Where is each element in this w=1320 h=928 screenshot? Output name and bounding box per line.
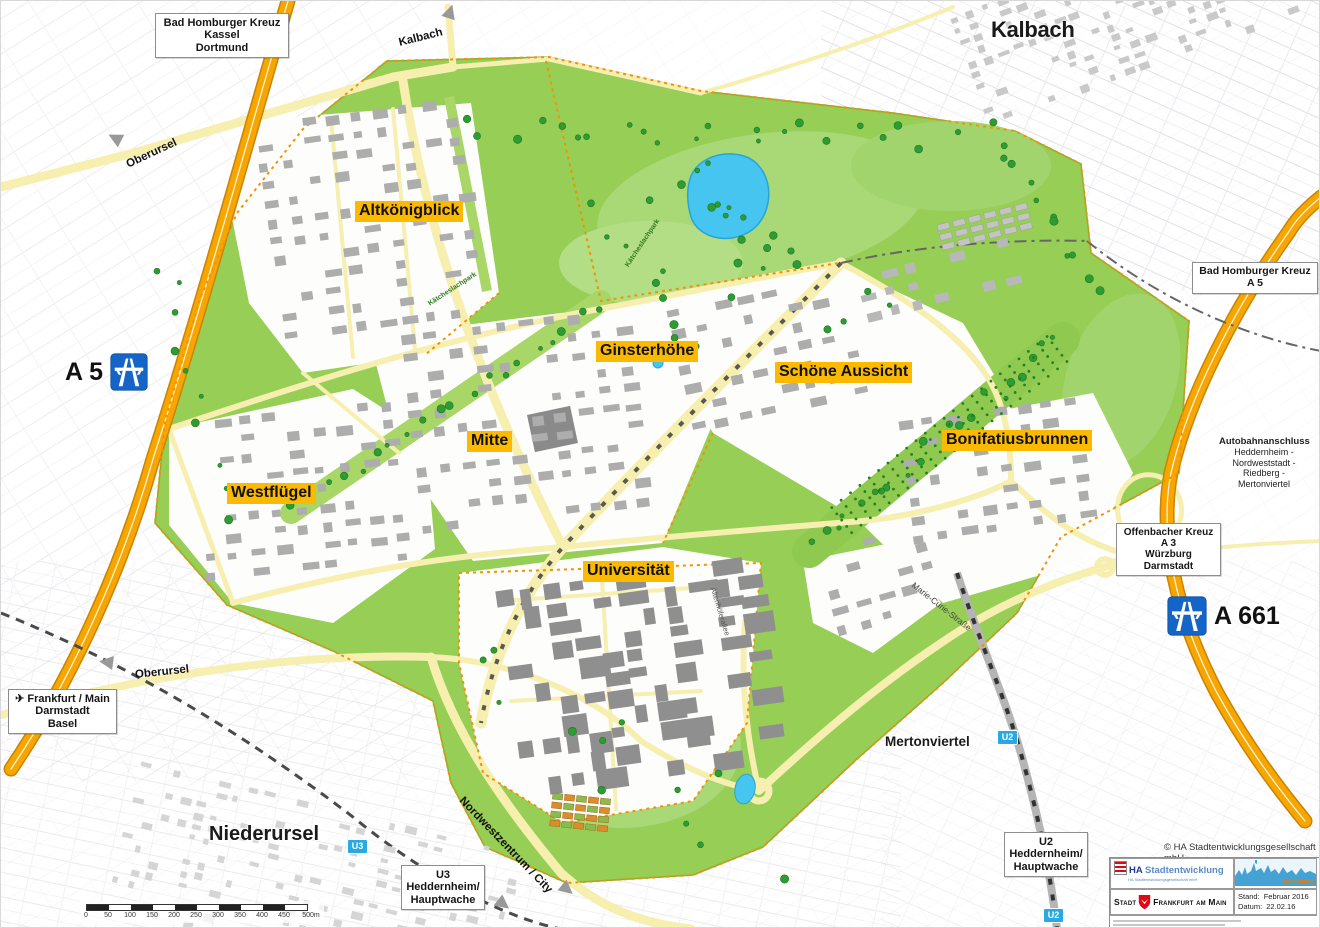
fineprint-line	[1113, 924, 1225, 927]
airplane-icon: ✈	[15, 693, 24, 705]
city-logo-stadt: Stadt	[1114, 897, 1136, 907]
sign-line: U3	[404, 869, 482, 881]
scale-segment	[109, 905, 131, 910]
district-label-bonifatiusbrunnen: Bonifatiusbrunnen	[942, 430, 1092, 451]
scale-segment	[219, 905, 241, 910]
sign-line-text: Frankfurt / Main	[27, 693, 110, 705]
ha-logo-subline: HA Stadtentwicklungsgesellschaft mbH	[1128, 877, 1230, 882]
area-label-mertonviertel: Mertonviertel	[885, 734, 970, 749]
scale-segment	[153, 905, 175, 910]
sign-frankfurt-airport: ✈ Frankfurt / Main Darmstadt Basel	[8, 689, 117, 734]
motorway-plate-a5: A 5	[65, 353, 148, 391]
sign-line: Würzburg	[1119, 549, 1218, 560]
motorway-number: A 5	[65, 358, 103, 387]
u2-line-badge: U2	[997, 730, 1018, 745]
scale-tick: 400	[256, 912, 268, 919]
scale-tick: 300	[212, 912, 224, 919]
datum-value: 22.02.16	[1266, 902, 1295, 912]
scale-tick: 150	[146, 912, 158, 919]
scale-tick: 50	[104, 912, 112, 919]
scale-tick: 450	[278, 912, 290, 919]
imprint-fineprint	[1110, 915, 1317, 928]
riedberg-district-map: Bad Homburger Kreuz Kassel Dortmund Bad …	[0, 0, 1320, 928]
area-label-niederursel: Niederursel	[209, 823, 319, 846]
scale-bar: 0 50 100 150 200 250 300 350 400 450 500…	[80, 901, 324, 923]
map-art	[1, 1, 1320, 928]
autobahnanschluss-note: Autobahnanschluss Heddernheim - Nordwest…	[1219, 436, 1309, 490]
sign-line: Darmstadt	[1119, 561, 1218, 572]
sign-line: Hauptwache	[404, 894, 482, 906]
scale-bar-segments	[86, 904, 308, 911]
autobahn-icon	[110, 353, 148, 391]
scale-tick: 0	[84, 912, 88, 919]
hessen-flag-icon	[1114, 861, 1127, 875]
sign-line: Darmstadt	[11, 705, 114, 717]
city-logo-name: Frankfurt am Main	[1153, 897, 1226, 907]
riedberg-logo-text: Riedberg	[1280, 877, 1313, 886]
ha-logo-text-rest: Stadtentwicklung	[1142, 865, 1223, 876]
scale-segment	[285, 905, 307, 910]
note-line: Autobahnanschluss	[1219, 436, 1309, 447]
sign-line: U2	[1007, 836, 1085, 848]
motorway-plate-a661: A 661	[1167, 596, 1280, 636]
imprint-riedberg-cell: Riedberg	[1234, 858, 1317, 889]
imprint-ha-cell: HA Stadtentwicklung HA Stadtentwicklungs…	[1110, 858, 1234, 889]
sign-line: A 3	[1119, 538, 1218, 549]
motorway-number: A 661	[1214, 602, 1280, 631]
sign-bad-homburger-kreuz-nord: Bad Homburger Kreuz Kassel Dortmund	[155, 13, 289, 58]
scale-tick: 200	[168, 912, 180, 919]
frankfurt-crest-icon	[1138, 895, 1151, 910]
stand-value: Februar 2016	[1264, 892, 1309, 902]
sign-line: Kassel	[158, 29, 286, 41]
note-line: Heddernheim -	[1219, 447, 1309, 458]
fineprint-line	[1113, 920, 1241, 923]
ha-logo-text: HA	[1129, 865, 1142, 876]
note-line: Riedberg -	[1219, 468, 1309, 479]
sign-offenbacher-kreuz: Offenbacher Kreuz A 3 Würzburg Darmstadt	[1116, 523, 1221, 576]
sign-u2-heddernheim: U2 Heddernheim/ Hauptwache	[1004, 832, 1088, 877]
district-label-universitaet: Universität	[583, 561, 674, 582]
sign-line: A 5	[1195, 278, 1315, 290]
scale-segment	[241, 905, 263, 910]
sign-line: Offenbacher Kreuz	[1119, 527, 1218, 538]
sign-bad-homburger-kreuz-a5: Bad Homburger Kreuz A 5	[1192, 262, 1318, 294]
note-line: Mertonviertel	[1219, 479, 1309, 490]
scale-bar-labels: 0 50 100 150 200 250 300 350 400 450 500…	[86, 912, 318, 921]
u3-line-badge: U3	[347, 839, 368, 854]
district-label-westfluegel: Westflügel	[227, 483, 316, 504]
sign-line: Bad Homburger Kreuz	[158, 17, 286, 29]
scale-tick: 250	[190, 912, 202, 919]
scale-segment	[197, 905, 219, 910]
note-line: Nordweststadt -	[1219, 458, 1309, 469]
sign-line: Basel	[11, 718, 114, 730]
sign-line: Hauptwache	[1007, 861, 1085, 873]
datum-label: Datum:	[1238, 902, 1262, 912]
stand-label: Stand:	[1238, 892, 1260, 902]
lake	[688, 154, 769, 239]
imprint-box: HA Stadtentwicklung HA Stadtentwicklungs…	[1109, 857, 1320, 928]
sign-line: Heddernheim/	[404, 881, 482, 893]
scale-segment	[87, 905, 109, 910]
scale-segment	[131, 905, 153, 910]
area-label-kalbach: Kalbach	[991, 17, 1074, 43]
scale-segment	[263, 905, 285, 910]
scale-tick: 100	[124, 912, 136, 919]
sign-line: Heddernheim/	[1007, 848, 1085, 860]
district-label-mitte: Mitte	[467, 431, 512, 452]
scale-tick: 500m	[302, 912, 320, 919]
u2-line-badge-2: U2	[1043, 908, 1064, 923]
scale-segment	[175, 905, 197, 910]
autobahn-icon	[1167, 596, 1207, 636]
district-label-altkoenigblick: Altkönigblick	[355, 201, 463, 222]
imprint-city-cell: Stadt Frankfurt am Main	[1110, 889, 1234, 915]
district-label-schoene-aussicht: Schöne Aussicht	[775, 362, 912, 383]
sign-u3-heddernheim: U3 Heddernheim/ Hauptwache	[401, 865, 485, 910]
district-label-ginsterhoehe: Ginsterhöhe	[596, 341, 698, 362]
scale-tick: 350	[234, 912, 246, 919]
sign-line: ✈ Frankfurt / Main	[11, 693, 114, 705]
sign-line: Bad Homburger Kreuz	[1195, 266, 1315, 278]
sign-line: Dortmund	[158, 42, 286, 54]
imprint-date-cell: Stand:Februar 2016 Datum:22.02.16	[1234, 889, 1317, 915]
